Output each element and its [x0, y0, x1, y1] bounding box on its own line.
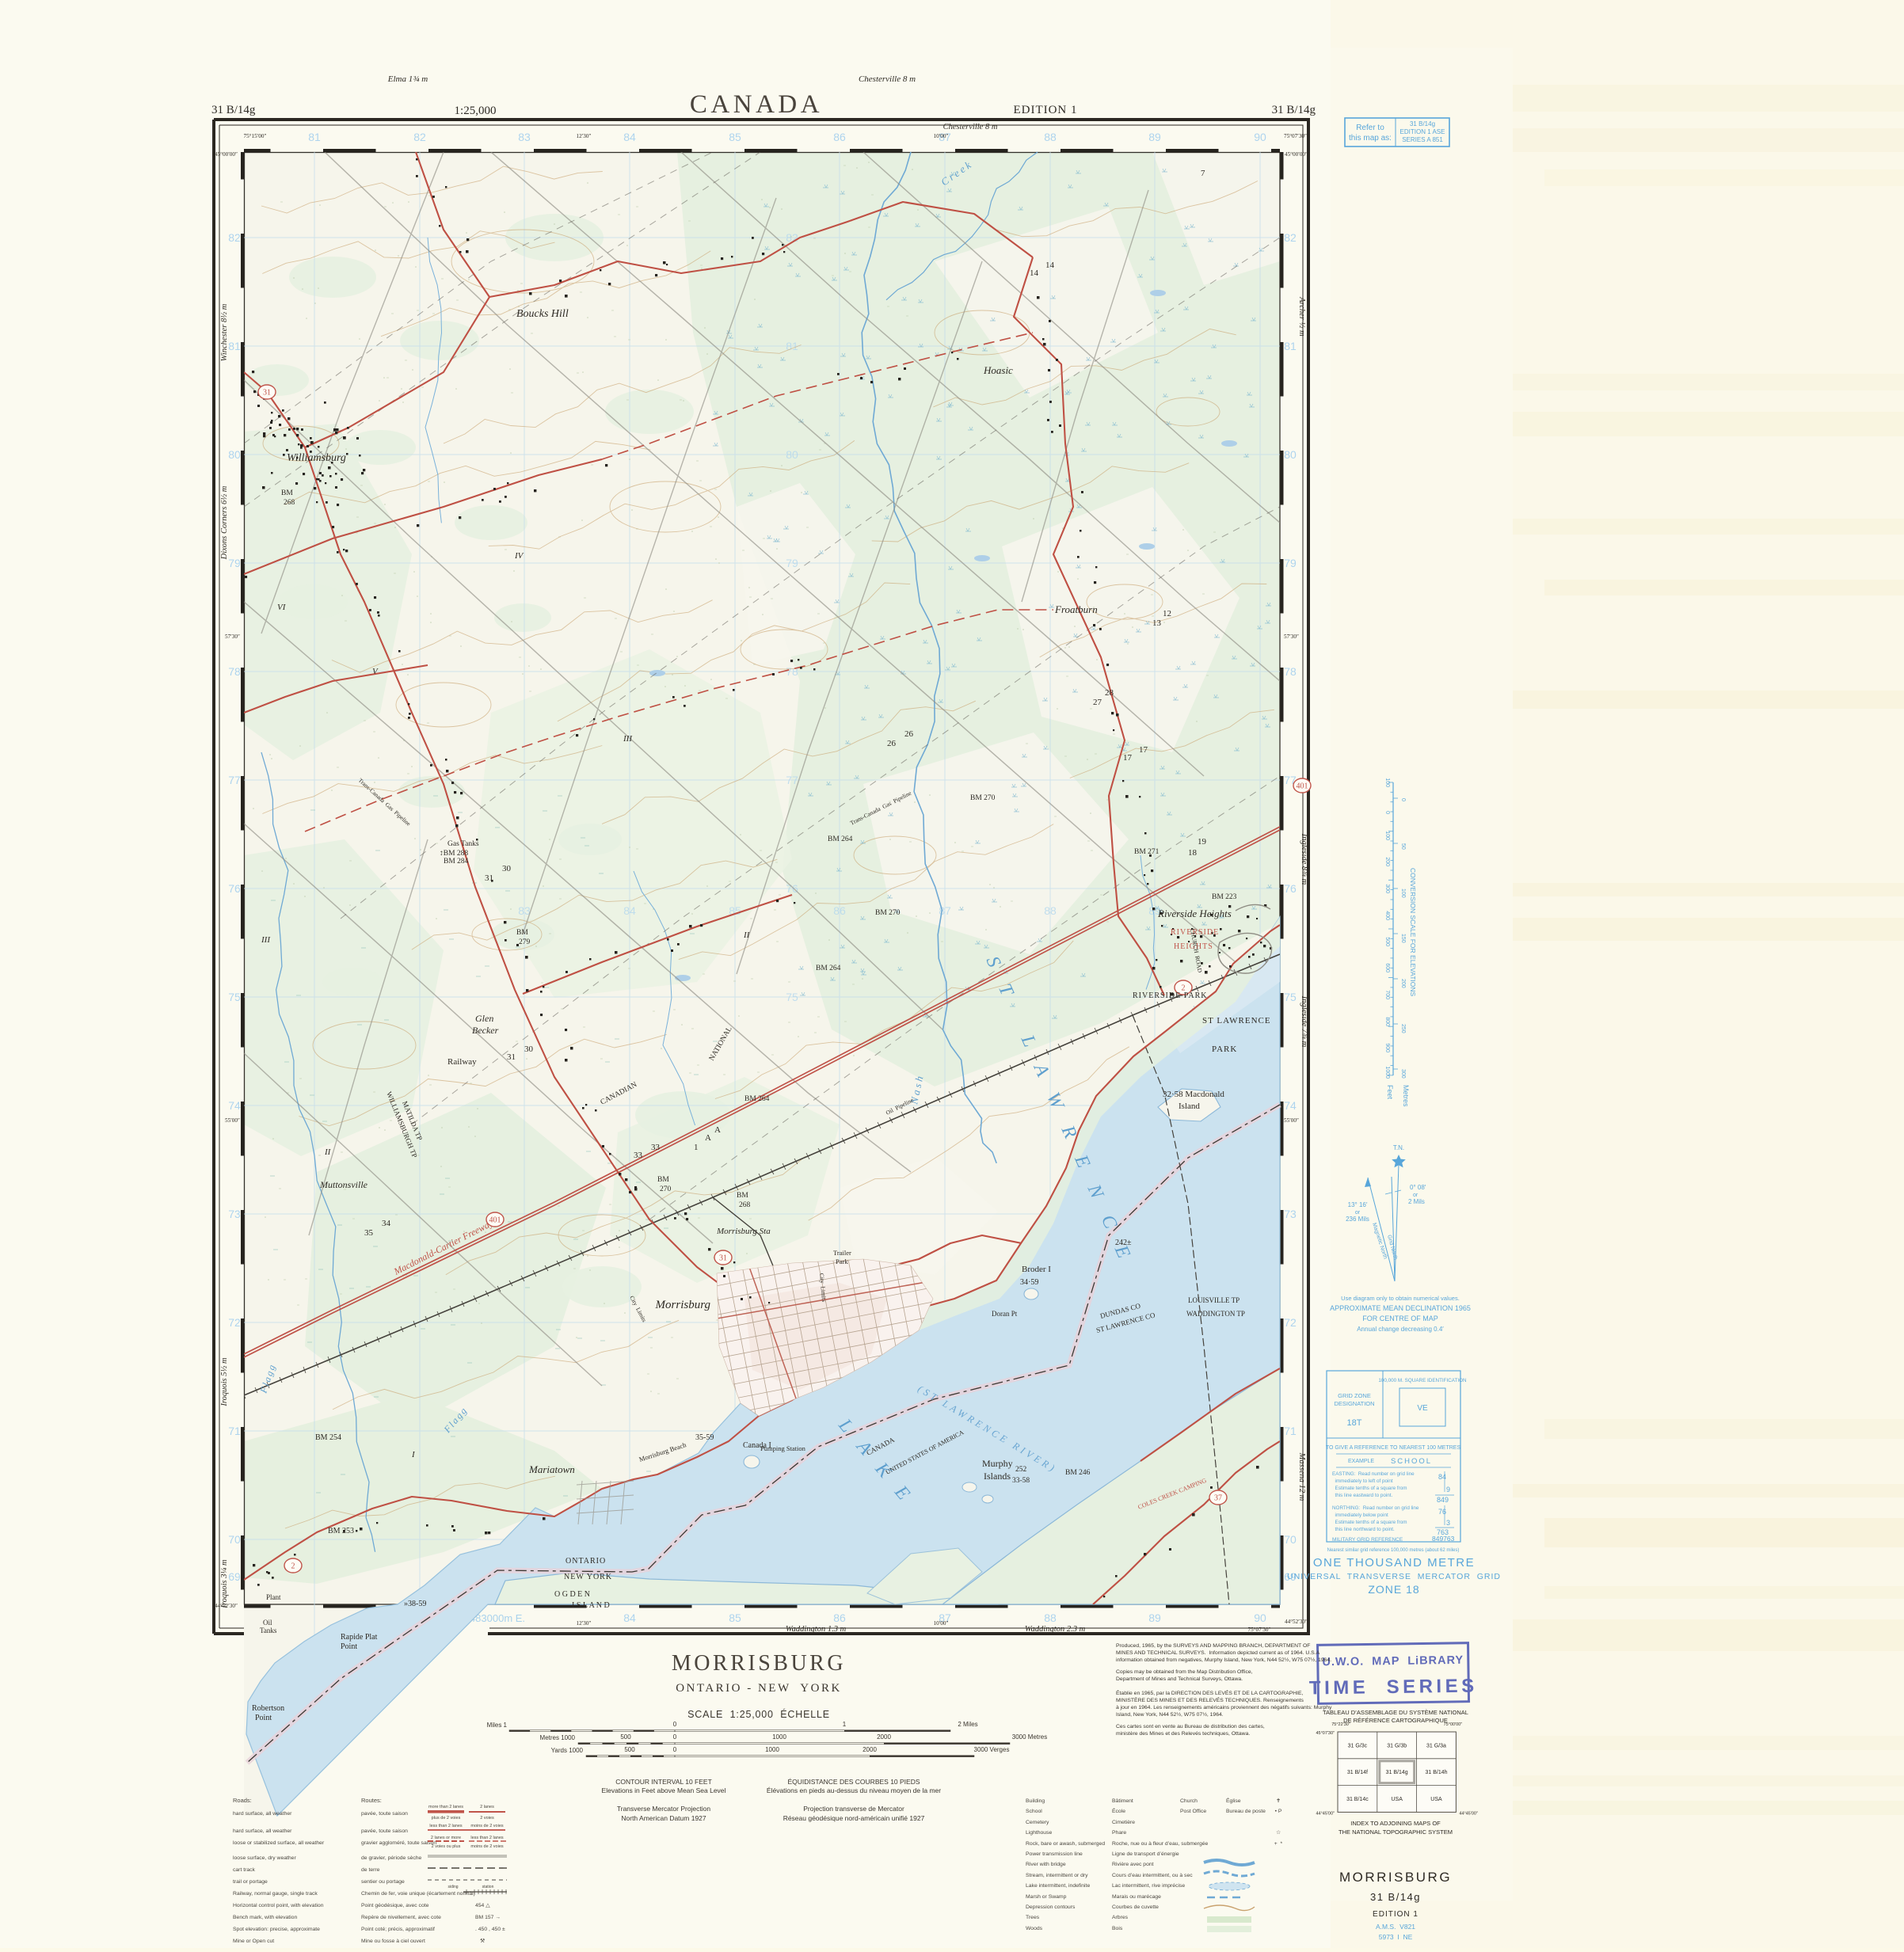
svg-text:Cimetière: Cimetière [1112, 1820, 1135, 1825]
svg-text:ÉQUIDISTANCE DES COURBES 10 PI: ÉQUIDISTANCE DES COURBES 10 PIEDS [787, 1778, 920, 1786]
svg-text:Rivière avec pont: Rivière avec pont [1112, 1862, 1154, 1867]
svg-text:ST LAWRENCE: ST LAWRENCE [1202, 1016, 1271, 1025]
svg-text:31 B/14f: 31 B/14f [1347, 1770, 1368, 1775]
svg-text:Depression contours: Depression contours [1026, 1904, 1076, 1910]
svg-text:Estimate tenths of a square fr: Estimate tenths of a square from [1332, 1486, 1407, 1491]
svg-text:268: 268 [739, 1201, 751, 1209]
svg-text:Élévations en pieds au-dessus: Élévations en pieds au-dessus du niveau … [767, 1786, 941, 1794]
svg-text:73: 73 [1284, 1208, 1297, 1220]
svg-text:MILITARY GRID REFERENCE: MILITARY GRID REFERENCE [1332, 1537, 1403, 1543]
svg-text:Dixons Corners 6½ m: Dixons Corners 6½ m [220, 485, 229, 560]
svg-text:Gas Tanks: Gas Tanks [447, 840, 479, 848]
svg-text:II: II [324, 1147, 332, 1157]
svg-text:BM 223: BM 223 [1212, 893, 1237, 901]
svg-text:moins de 2 voies: moins de 2 voies [470, 1844, 504, 1849]
svg-text:401: 401 [489, 1216, 501, 1225]
svg-text:Williamsburg: Williamsburg [287, 452, 346, 464]
svg-text:800: 800 [1384, 1017, 1390, 1026]
svg-text:BM 284: BM 284 [444, 858, 469, 866]
svg-text:236 Mils: 236 Mils [1346, 1216, 1369, 1223]
svg-text:Marais ou marécage: Marais ou marécage [1112, 1894, 1161, 1900]
svg-text:DE RÉFÉRENCE CARTOGRAPHIQUE: DE RÉFÉRENCE CARTOGRAPHIQUE [1343, 1717, 1448, 1724]
svg-text:USA: USA [1391, 1797, 1403, 1802]
svg-text:0: 0 [1384, 811, 1390, 814]
svg-text:trail or portage: trail or portage [233, 1879, 268, 1885]
svg-text:ONTARIO - NEW YORK: ONTARIO - NEW YORK [676, 1682, 842, 1695]
svg-text:Produced, 1965, by the SURVEYS: Produced, 1965, by the SURVEYS AND MAPPI… [1116, 1643, 1310, 1649]
svg-text:81: 81 [1284, 340, 1297, 352]
svg-text:Cours d’eau intermittent, ou à: Cours d’eau intermittent, ou à sec [1112, 1873, 1193, 1878]
svg-text:2 voies ou plus: 2 voies ou plus [432, 1844, 461, 1849]
svg-text:28: 28 [1105, 688, 1114, 698]
svg-text:2: 2 [291, 1562, 295, 1571]
svg-text:or: or [1355, 1210, 1361, 1216]
svg-text:A: A [705, 1133, 711, 1143]
svg-text:THE NATIONAL TOPOGRAPHIC SYSTE: THE NATIONAL TOPOGRAPHIC SYSTEM [1339, 1828, 1453, 1836]
svg-text:Feet: Feet [1386, 1085, 1394, 1100]
svg-text:Park: Park [836, 1258, 848, 1265]
svg-text:82: 82 [1284, 231, 1297, 244]
svg-text:31 B/14c: 31 B/14c [1346, 1797, 1369, 1802]
svg-text:1: 1 [694, 1143, 699, 1152]
svg-text:Projection transverse de Merca: Projection transverse de Mercator [803, 1805, 904, 1813]
svg-text:31: 31 [507, 1052, 516, 1062]
svg-text:83: 83 [518, 131, 531, 143]
svg-text:Marsh or Swamp: Marsh or Swamp [1026, 1894, 1067, 1900]
svg-text:2 lanes: 2 lanes [480, 1805, 494, 1809]
svg-text:86: 86 [833, 131, 846, 143]
svg-text:45°07′30″: 45°07′30″ [1316, 1731, 1335, 1736]
svg-text:School: School [1026, 1809, 1042, 1814]
svg-text:31 B/14g: 31 B/14g [1370, 1891, 1421, 1903]
svg-text:DESIGNATION: DESIGNATION [1334, 1400, 1374, 1407]
svg-text:31 G/3a: 31 G/3a [1426, 1743, 1446, 1748]
svg-text:Froatburn: Froatburn [1054, 603, 1098, 615]
svg-text:250: 250 [1400, 1024, 1406, 1033]
svg-text:BM 264: BM 264 [828, 835, 853, 843]
svg-text:Iroquois 5½ m: Iroquois 5½ m [220, 1357, 229, 1407]
svg-text:EDITION 1: EDITION 1 [1373, 1910, 1418, 1919]
svg-text:27: 27 [1093, 698, 1102, 707]
svg-text:VI: VI [277, 603, 287, 612]
svg-text:75: 75 [786, 991, 798, 1003]
svg-text:RIVERSIDE PARK: RIVERSIDE PARK [1133, 991, 1207, 1000]
svg-text:81: 81 [228, 340, 241, 352]
svg-text:300: 300 [1384, 884, 1390, 893]
svg-text:31: 31 [263, 389, 271, 398]
svg-text:44°45′00″: 44°45′00″ [1316, 1811, 1335, 1816]
svg-text:Becker: Becker [472, 1025, 499, 1036]
svg-text:I S L A N D: I S L A N D [572, 1601, 610, 1610]
svg-text:2 Mils: 2 Mils [1408, 1198, 1425, 1205]
svg-text:EASTING: Read number on grid: EASTING: Read number on grid line [1332, 1471, 1415, 1477]
svg-text:13: 13 [1152, 618, 1162, 628]
svg-text:BM: BM [737, 1192, 748, 1200]
svg-text:Robertson: Robertson [252, 1704, 284, 1713]
svg-text:Morrisburg: Morrisburg [655, 1299, 711, 1311]
svg-text:70: 70 [228, 1533, 241, 1546]
svg-text:90: 90 [1254, 1611, 1266, 1624]
svg-text:Lighthouse: Lighthouse [1026, 1830, 1052, 1836]
svg-text:88: 88 [1044, 904, 1057, 917]
svg-text:76: 76 [1438, 1508, 1446, 1516]
svg-text:82: 82 [228, 231, 241, 244]
svg-text:33-58: 33-58 [1012, 1477, 1030, 1485]
svg-text:Church: Church [1180, 1798, 1198, 1804]
svg-text:Point: Point [341, 1642, 357, 1651]
svg-text:80: 80 [786, 448, 798, 461]
svg-text:2 voies: 2 voies [480, 1816, 494, 1821]
svg-text:↕BM 288: ↕BM 288 [440, 850, 468, 858]
svg-text:CONTOUR INTERVAL 10 FEET: CONTOUR INTERVAL 10 FEET [615, 1778, 712, 1786]
svg-text:EXAMPLE: EXAMPLE [1348, 1459, 1374, 1464]
svg-text:TABLEAU D’ASSEMBLAGE DU SYSTÈM: TABLEAU D’ASSEMBLAGE DU SYSTÈME NATIONAL [1323, 1709, 1468, 1716]
svg-text:Mine ou fosse à ciel ouvert: Mine ou fosse à ciel ouvert [361, 1939, 425, 1944]
svg-text:+ *: + * [1274, 1841, 1283, 1847]
svg-text:150: 150 [1400, 934, 1406, 943]
svg-text:Elevations in Feet above Mean: Elevations in Feet above Mean Sea Level [602, 1786, 726, 1794]
svg-text:1000: 1000 [765, 1746, 779, 1753]
svg-text:7: 7 [1201, 169, 1205, 178]
svg-text:Annual change decreasing 0.4′: Annual change decreasing 0.4′ [1357, 1326, 1444, 1333]
svg-text:II: II [743, 930, 751, 940]
svg-text:APPROXIMATE MEAN DECLINATION 1: APPROXIMATE MEAN DECLINATION 1965 [1330, 1304, 1471, 1312]
svg-text:Boucks Hill: Boucks Hill [516, 308, 569, 320]
svg-text:454 △: 454 △ [475, 1903, 490, 1908]
svg-text:77: 77 [228, 774, 241, 786]
svg-text:immediately below point: immediately below point [1332, 1513, 1388, 1518]
svg-text:FOR CENTRE OF MAP: FOR CENTRE OF MAP [1362, 1315, 1438, 1322]
svg-text:31 B/14h: 31 B/14h [1425, 1770, 1447, 1775]
svg-text:500: 500 [624, 1746, 635, 1753]
svg-text:Oil: Oil [263, 1619, 272, 1627]
svg-text:849763: 849763 [1432, 1535, 1455, 1543]
svg-text:Trees: Trees [1026, 1915, 1040, 1920]
svg-text:270: 270 [660, 1185, 672, 1193]
svg-text:17: 17 [1139, 745, 1148, 755]
svg-text:EDITION 1 ASE: EDITION 1 ASE [1400, 128, 1445, 135]
svg-text:26: 26 [904, 729, 914, 739]
svg-text:78: 78 [1284, 665, 1297, 678]
svg-text:TIME SERIES: TIME SERIES [1309, 1676, 1478, 1699]
svg-text:18: 18 [1188, 848, 1198, 858]
svg-text:ZONE 18: ZONE 18 [1368, 1583, 1419, 1596]
svg-text:26: 26 [887, 739, 897, 748]
svg-text:0: 0 [1400, 798, 1406, 801]
svg-text:moins de 2 voies: moins de 2 voies [470, 1824, 504, 1828]
svg-text:Lake intermittent, indefinite: Lake intermittent, indefinite [1026, 1883, 1090, 1889]
svg-text:Glen: Glen [475, 1013, 493, 1024]
svg-text:UNIVERSAL TRANSVERSE MERCATO: UNIVERSAL TRANSVERSE MERCATOR GRID [1287, 1572, 1501, 1581]
svg-text:10′00″: 10′00″ [934, 133, 949, 139]
svg-text:17: 17 [1123, 753, 1133, 763]
svg-text:69: 69 [228, 1570, 241, 1583]
svg-text:14: 14 [1045, 261, 1055, 270]
svg-text:3000 Metres: 3000 Metres [1012, 1733, 1047, 1741]
svg-text:Point coté; précis, approximat: Point coté; précis, approximatif [361, 1927, 435, 1932]
svg-text:Copies may be obtained from th: Copies may be obtained from the Map Dist… [1116, 1669, 1253, 1675]
svg-text:hard surface, all weather: hard surface, all weather [233, 1811, 292, 1817]
svg-text:LOUISVILLE TP: LOUISVILLE TP [1188, 1296, 1240, 1304]
svg-text:IV: IV [514, 551, 524, 561]
svg-text:55′00″: 55′00″ [1284, 1117, 1299, 1124]
svg-text:19: 19 [1198, 837, 1207, 847]
svg-text:Metres: Metres [1402, 1085, 1410, 1107]
svg-text:2000: 2000 [863, 1746, 877, 1753]
svg-text:BM: BM [281, 489, 293, 497]
svg-text:Ligne de transport d’énergie: Ligne de transport d’énergie [1112, 1851, 1179, 1857]
svg-text:90: 90 [1254, 131, 1266, 143]
svg-text:BM 246: BM 246 [1065, 1469, 1091, 1477]
svg-text:Cemetery: Cemetery [1026, 1820, 1049, 1825]
svg-text:72: 72 [1284, 1316, 1297, 1329]
svg-text:Transverse Mercator Projection: Transverse Mercator Projection [617, 1805, 711, 1813]
svg-text:Broder I: Broder I [1022, 1265, 1051, 1274]
svg-text:14: 14 [1030, 268, 1039, 278]
svg-text:Lac intermittent, rive impréci: Lac intermittent, rive imprécise [1112, 1883, 1185, 1889]
svg-text:Stream, intermittent or dry: Stream, intermittent or dry [1026, 1873, 1088, 1878]
svg-text:300: 300 [1400, 1069, 1406, 1079]
svg-text:18T: 18T [1347, 1418, 1362, 1428]
svg-text:84: 84 [623, 131, 636, 143]
svg-text:III: III [623, 734, 633, 744]
svg-text:31 B/14g: 31 B/14g [1410, 120, 1435, 127]
svg-text:1000: 1000 [772, 1733, 786, 1741]
svg-text:500: 500 [620, 1733, 631, 1741]
svg-text:31: 31 [719, 1254, 727, 1263]
svg-text:Chemin de fer, voie unique (éc: Chemin de fer, voie unique (écartement n… [361, 1891, 475, 1897]
svg-text:Archer ½ m: Archer ½ m [1297, 296, 1306, 337]
svg-text:Miles 1: Miles 1 [487, 1722, 508, 1729]
svg-text:600: 600 [1384, 963, 1390, 972]
svg-text:401: 401 [1297, 782, 1308, 791]
svg-text:less than 2 lanes: less than 2 lanes [470, 1836, 504, 1840]
svg-text:this map as:: this map as: [1349, 134, 1392, 143]
svg-text:Elma 1¾ m: Elma 1¾ m [387, 74, 428, 84]
svg-text:Railway, normal gauge, single: Railway, normal gauge, single track [233, 1891, 318, 1897]
svg-text:CANADA: CANADA [690, 90, 823, 119]
svg-text:Pumping Station: Pumping Station [760, 1444, 806, 1452]
svg-text:Établie en 1965, par la DIRECT: Établie en 1965, par la DIRECTION DES LE… [1116, 1689, 1304, 1696]
svg-text:31 G/3b: 31 G/3b [1387, 1743, 1407, 1748]
svg-text:ONTARIO: ONTARIO [565, 1557, 606, 1566]
svg-text:44°45′00″: 44°45′00″ [1459, 1811, 1478, 1816]
svg-text:Chesterville 8 m: Chesterville 8 m [859, 74, 916, 84]
svg-text:sentier ou portage: sentier ou portage [361, 1879, 405, 1885]
svg-text:USA: USA [1430, 1797, 1442, 1802]
svg-text:Post Office: Post Office [1180, 1809, 1206, 1814]
svg-text:BM 264: BM 264 [744, 1095, 770, 1103]
svg-text:75: 75 [228, 991, 241, 1003]
svg-text:North American Datum 1927: North American Datum 1927 [621, 1814, 706, 1822]
svg-text:Mine or Open cut: Mine or Open cut [233, 1939, 274, 1944]
svg-text:79: 79 [1284, 557, 1297, 569]
svg-text:Plant: Plant [266, 1593, 281, 1601]
svg-text:45°00′00″: 45°00′00″ [1285, 151, 1308, 158]
svg-text:200: 200 [1400, 979, 1406, 988]
svg-text:this line eastward to point.: this line eastward to point. [1332, 1493, 1393, 1498]
svg-text:31 B/14g: 31 B/14g [211, 104, 256, 116]
svg-text:30: 30 [524, 1044, 534, 1054]
svg-text:Nearest similar grid reference: Nearest similar grid reference 100,000 m… [1327, 1548, 1460, 1553]
svg-text:BM 270: BM 270 [875, 909, 901, 917]
svg-text:École: École [1112, 1807, 1125, 1814]
svg-text:100: 100 [1384, 831, 1390, 840]
svg-text:71: 71 [228, 1425, 241, 1437]
svg-text:84: 84 [623, 904, 636, 917]
svg-text:Réseau géodésique nord-américa: Réseau géodésique nord-américain unifié … [783, 1814, 925, 1822]
svg-text:GRID ZONE: GRID ZONE [1338, 1392, 1371, 1399]
svg-text:1:25,000: 1:25,000 [455, 105, 497, 117]
svg-text:80: 80 [1284, 448, 1297, 461]
svg-text:89: 89 [1148, 131, 1161, 143]
svg-text:71: 71 [1284, 1425, 1297, 1437]
svg-text:Hoasic: Hoasic [983, 364, 1013, 376]
svg-text:86: 86 [833, 904, 846, 917]
svg-text:Estimate tenths of a square fr: Estimate tenths of a square from [1332, 1520, 1407, 1525]
svg-text:85: 85 [729, 131, 741, 143]
svg-text:33: 33 [651, 1143, 661, 1152]
svg-text:82: 82 [413, 131, 426, 143]
svg-text:2 Miles: 2 Miles [958, 1721, 977, 1728]
svg-text:cart track: cart track [233, 1867, 256, 1873]
svg-text:5973 I NE: 5973 I NE [1379, 1933, 1413, 1941]
svg-text:80: 80 [228, 448, 241, 461]
svg-text:84: 84 [623, 1611, 636, 1624]
svg-text:✝: ✝ [1276, 1798, 1281, 1804]
svg-text:2000: 2000 [877, 1733, 891, 1741]
svg-text:Island, New York, N44 52½, W75: Island, New York, N44 52½, W75 07½, 1964… [1116, 1711, 1224, 1718]
svg-text:Murphy: Murphy [982, 1458, 1013, 1469]
svg-text:12: 12 [1163, 609, 1171, 618]
svg-text:34: 34 [382, 1219, 391, 1228]
svg-text:31 G/3c: 31 G/3c [1348, 1743, 1368, 1748]
svg-text:81: 81 [308, 131, 321, 143]
svg-text:NORTHING: Read number on grid: NORTHING: Read number on grid line [1332, 1505, 1419, 1511]
svg-text:Routes:: Routes: [361, 1797, 382, 1804]
svg-text:900: 900 [1384, 1043, 1390, 1052]
svg-text:31: 31 [485, 873, 493, 883]
svg-text:siding: siding [447, 1885, 458, 1889]
svg-text:Waddington 1.3 m: Waddington 1.3 m [786, 1625, 847, 1634]
svg-text:U.W.O. MAP LiBRARY: U.W.O. MAP LiBRARY [1322, 1654, 1464, 1669]
svg-text:MORRISBURG: MORRISBURG [1339, 1870, 1452, 1885]
svg-text:Roads:: Roads: [233, 1797, 252, 1804]
svg-text:252: 252 [1015, 1466, 1027, 1474]
svg-text:Point: Point [255, 1714, 272, 1722]
svg-text:849: 849 [1437, 1496, 1449, 1504]
svg-text:BM 264: BM 264 [816, 965, 841, 972]
svg-text:Use diagram only to obtain num: Use diagram only to obtain numerical val… [1341, 1295, 1460, 1302]
svg-text:pavée, toute saison: pavée, toute saison [361, 1811, 408, 1817]
svg-text:44°52′30″: 44°52′30″ [1285, 1619, 1308, 1625]
svg-text:100: 100 [1384, 778, 1390, 787]
svg-text:72: 72 [228, 1316, 241, 1329]
svg-text:74: 74 [228, 1099, 241, 1112]
svg-text:Horizontal control point, with: Horizontal control point, with elevation [233, 1903, 324, 1908]
svg-text:TO GIVE A REFERENCE TO NEAREST: TO GIVE A REFERENCE TO NEAREST 100 METRE… [1326, 1445, 1461, 1451]
svg-text:88: 88 [1044, 1611, 1057, 1624]
svg-text:100: 100 [1400, 888, 1406, 898]
svg-text:☆: ☆ [1276, 1829, 1281, 1836]
svg-text:Island: Island [1179, 1102, 1200, 1111]
svg-text:9: 9 [1446, 1486, 1450, 1493]
svg-text:279: 279 [519, 938, 531, 946]
svg-text:gravier aggloméré, toute saiso: gravier aggloméré, toute saison [361, 1840, 436, 1846]
svg-text:Winchester 8½ m: Winchester 8½ m [220, 303, 229, 361]
svg-text:76: 76 [1284, 882, 1297, 895]
svg-text:57′30″: 57′30″ [1284, 634, 1299, 640]
svg-text:268: 268 [284, 499, 295, 507]
svg-text:88: 88 [1044, 131, 1057, 143]
svg-text:hard surface, all weather: hard surface, all weather [233, 1828, 292, 1834]
svg-text:55′00″: 55′00″ [225, 1117, 240, 1124]
svg-text:WADDINGTON TP: WADDINGTON TP [1186, 1310, 1245, 1318]
svg-text:75: 75 [1284, 991, 1297, 1003]
svg-text:84: 84 [1438, 1473, 1446, 1481]
svg-text:station: station [482, 1885, 494, 1889]
svg-text:»38-59: »38-59 [404, 1600, 426, 1608]
svg-text:Bureau de poste: Bureau de poste [1226, 1809, 1266, 1814]
svg-text:30: 30 [502, 864, 512, 873]
svg-text:73: 73 [228, 1208, 241, 1220]
svg-text:more than 2 lanes: more than 2 lanes [428, 1805, 463, 1809]
svg-text:VE: VE [1417, 1404, 1428, 1413]
svg-text:immediately to left of point: immediately to left of point [1332, 1478, 1393, 1484]
svg-text:86: 86 [833, 1611, 846, 1624]
svg-text:• P: • P [1275, 1809, 1282, 1814]
svg-text:242±: 242± [1115, 1239, 1132, 1247]
svg-text:SCHOOL: SCHOOL [1391, 1457, 1432, 1466]
svg-text:BM 157 →: BM 157 → [475, 1915, 501, 1920]
svg-text:Ingleside 8¾ m: Ingleside 8¾ m [1300, 833, 1308, 885]
svg-text:T.N.: T.N. [1393, 1144, 1404, 1151]
svg-text:BM 254: BM 254 [315, 1433, 341, 1442]
svg-text:32·58 Macdonald: 32·58 Macdonald [1163, 1090, 1224, 1099]
svg-text:BM 271: BM 271 [1134, 848, 1160, 856]
svg-text:Roche, nue ou à fleur d’eau, s: Roche, nue ou à fleur d’eau, submergée [1112, 1841, 1209, 1847]
svg-text:à jour en 1964. Les renseignem: à jour en 1964. Les renseignements améri… [1116, 1705, 1332, 1710]
svg-text:Metres 1000: Metres 1000 [540, 1734, 576, 1741]
svg-text:BM 270: BM 270 [970, 794, 996, 802]
svg-text:12′30″: 12′30″ [577, 1620, 592, 1627]
svg-text:Refer to: Refer to [1356, 124, 1384, 132]
svg-text:Riverside Heights: Riverside Heights [1157, 908, 1232, 919]
svg-text:SERIES A 851: SERIES A 851 [1402, 136, 1443, 143]
svg-text:Tanks: Tanks [260, 1627, 277, 1634]
svg-text:O G D E N: O G D E N [554, 1590, 590, 1599]
svg-text:13° 16′: 13° 16′ [1348, 1201, 1368, 1208]
svg-text:. 450 , 450 ±: . 450 , 450 ± [475, 1927, 505, 1932]
svg-text:Islands: Islands [984, 1471, 1011, 1482]
svg-text:loose surface, dry weather: loose surface, dry weather [233, 1855, 296, 1861]
svg-text:Rapide Plat: Rapide Plat [341, 1633, 378, 1642]
svg-text:Morrisburg Sta: Morrisburg Sta [716, 1227, 771, 1236]
svg-text:NEW YORK: NEW YORK [564, 1573, 612, 1581]
svg-text:45°00′00″: 45°00′00″ [215, 151, 238, 158]
svg-text:77: 77 [786, 774, 798, 786]
svg-text:or: or [1413, 1193, 1418, 1198]
svg-text:1000: 1000 [1384, 1066, 1390, 1079]
svg-text:Bench mark, with elevation: Bench mark, with elevation [233, 1915, 297, 1920]
svg-text:Power transmission line: Power transmission line [1026, 1851, 1083, 1857]
svg-text:INDEX TO ADJOINING MAPS OF: INDEX TO ADJOINING MAPS OF [1350, 1820, 1441, 1827]
svg-text:CONVERSION SCALE FOR ELEVATION: CONVERSION SCALE FOR ELEVATIONS [1409, 868, 1417, 996]
svg-text:ONE THOUSAND METRE: ONE THOUSAND METRE [1313, 1556, 1475, 1570]
svg-text:3000 Verges: 3000 Verges [974, 1746, 1010, 1753]
svg-text:River with bridge: River with bridge [1026, 1862, 1066, 1867]
svg-text:Waddington 2.3 m: Waddington 2.3 m [1025, 1625, 1086, 1634]
